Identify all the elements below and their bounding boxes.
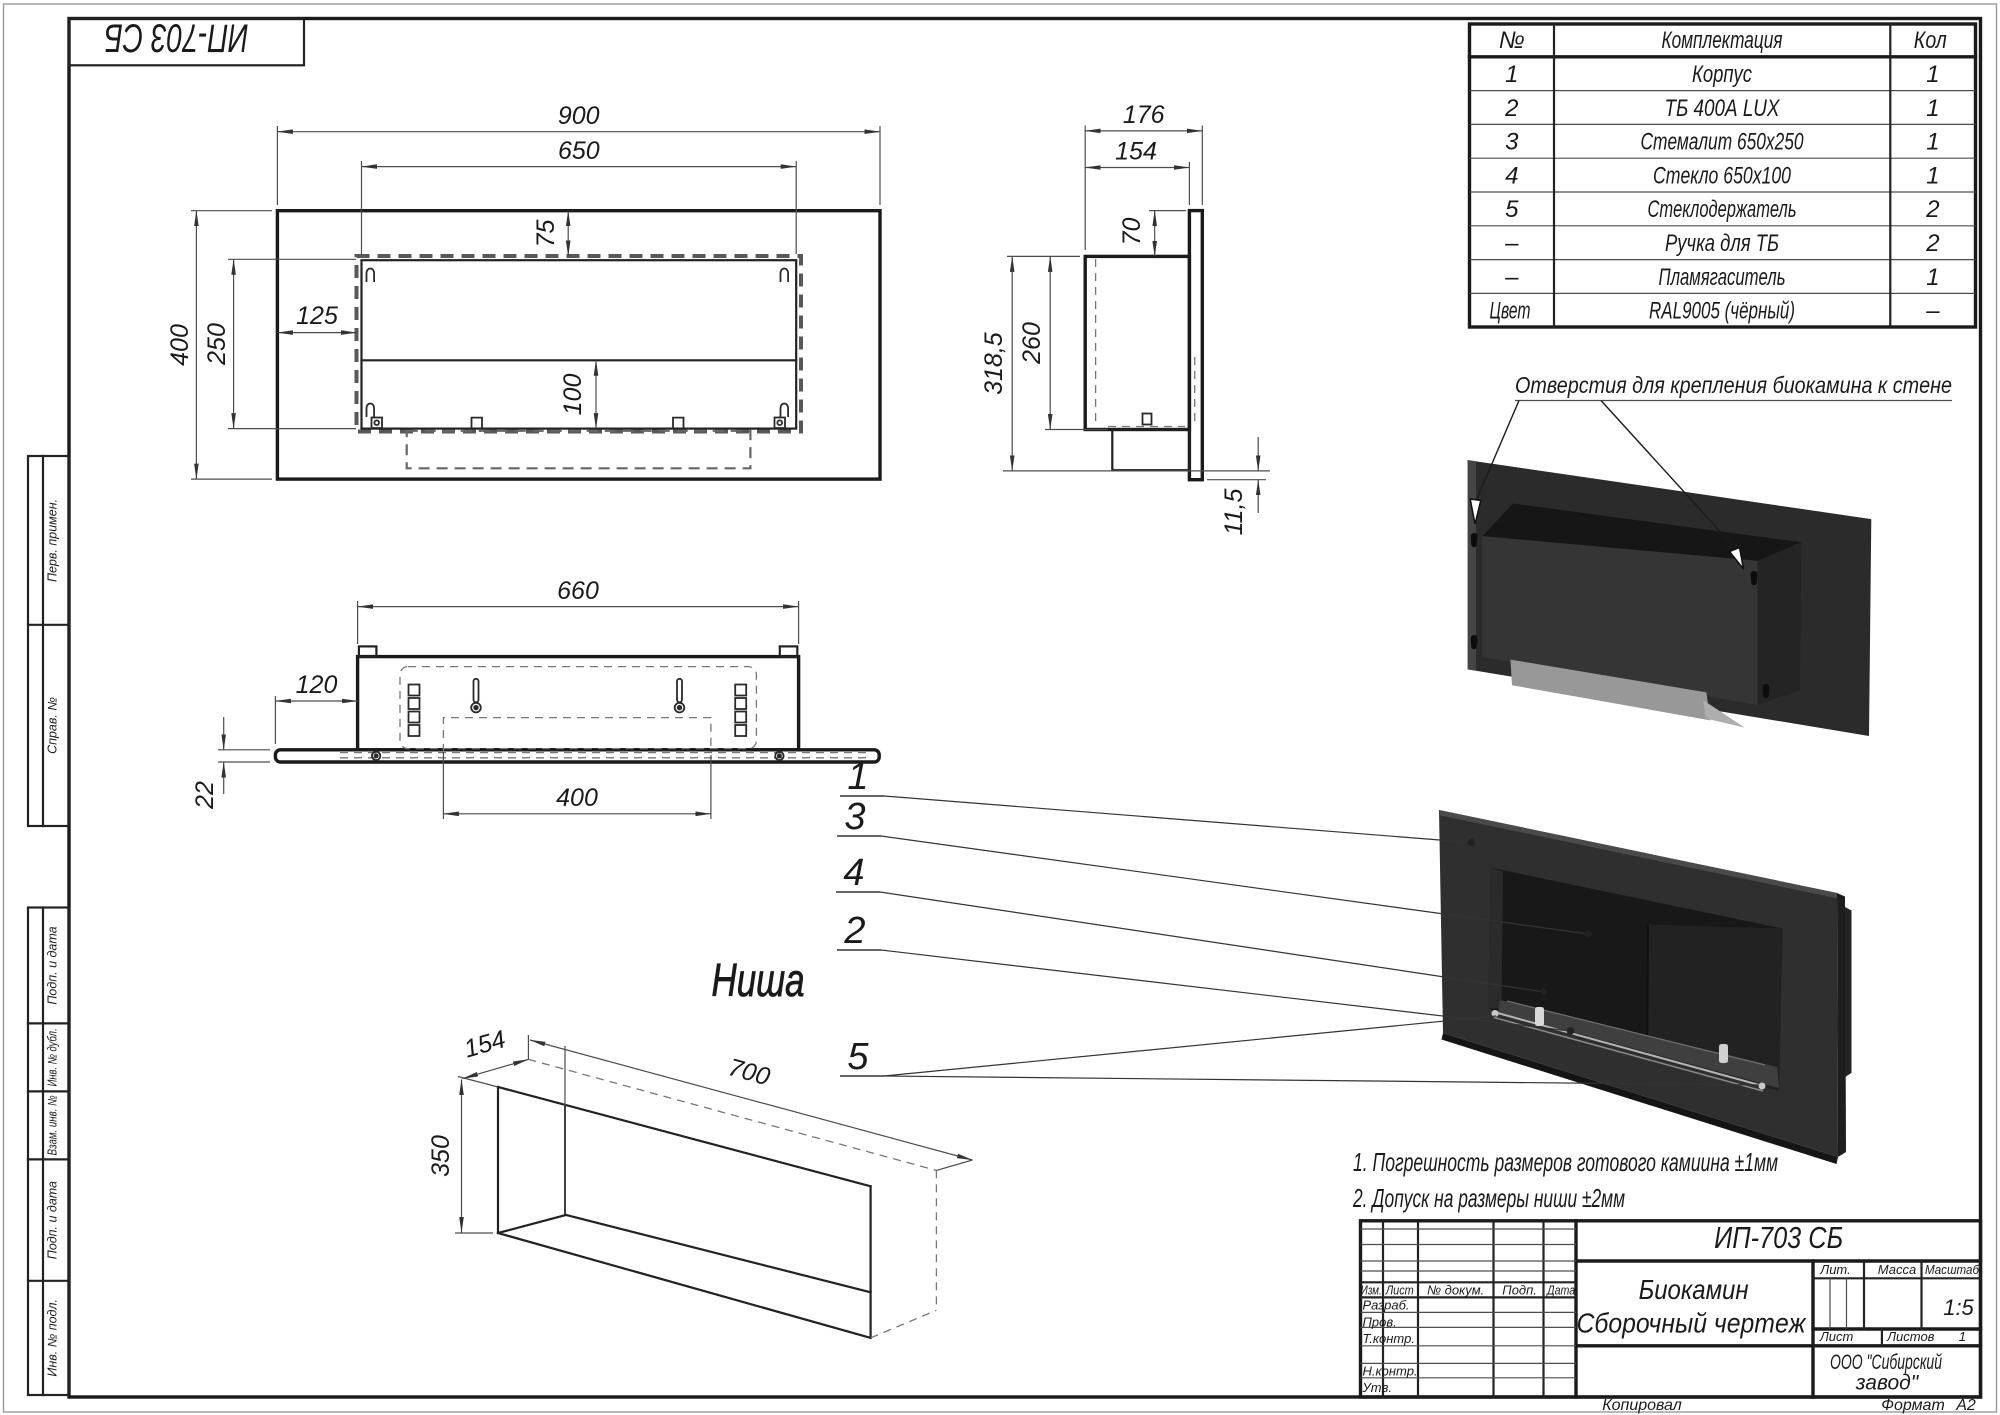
svg-text:Листов: Листов [1886, 1329, 1935, 1344]
svg-text:1: 1 [1926, 95, 1939, 122]
svg-text:318,5: 318,5 [980, 332, 1008, 395]
svg-text:–: – [1504, 230, 1519, 257]
svg-text:100: 100 [559, 374, 587, 416]
svg-text:Лист: Лист [1819, 1329, 1854, 1344]
svg-text:75: 75 [532, 220, 560, 248]
svg-text:1: 1 [1959, 1329, 1966, 1344]
svg-text:22: 22 [191, 781, 219, 810]
svg-text:Пров.: Пров. [1363, 1315, 1397, 1330]
svg-text:Ниша: Ниша [712, 954, 805, 1006]
svg-text:ТБ 400А LUX: ТБ 400А LUX [1665, 95, 1781, 122]
svg-text:№: № [1499, 27, 1525, 54]
svg-text:660: 660 [557, 577, 599, 605]
svg-text:1: 1 [1926, 264, 1939, 291]
svg-text:Инв. № дубл.: Инв. № дубл. [46, 1028, 60, 1086]
svg-text:350: 350 [427, 1135, 455, 1177]
svg-text:Кол: Кол [1914, 27, 1947, 54]
svg-text:120: 120 [296, 671, 338, 699]
svg-text:Дата: Дата [1545, 1283, 1575, 1298]
svg-text:Пламягаситель: Пламягаситель [1659, 264, 1786, 291]
svg-text:Взам. инв. №: Взам. инв. № [46, 1095, 60, 1155]
svg-text:Изм.: Изм. [1361, 1283, 1382, 1298]
svg-text:Лист: Лист [1385, 1283, 1414, 1298]
svg-text:1:5: 1:5 [1943, 1295, 1974, 1320]
svg-text:125: 125 [296, 302, 338, 330]
svg-text:1: 1 [1926, 162, 1939, 189]
svg-text:11,5: 11,5 [1220, 489, 1248, 536]
svg-text:900: 900 [558, 102, 600, 130]
svg-text:176: 176 [1123, 101, 1165, 129]
svg-text:2: 2 [1925, 196, 1939, 223]
svg-text:Копировал: Копировал [1602, 1397, 1682, 1414]
svg-text:4: 4 [843, 852, 864, 894]
svg-text:1: 1 [847, 756, 868, 798]
svg-text:3: 3 [844, 796, 865, 838]
svg-text:1: 1 [1926, 129, 1939, 156]
svg-text:5: 5 [1505, 196, 1519, 223]
svg-text:Справ. №: Справ. № [46, 697, 60, 754]
svg-text:154: 154 [1115, 138, 1157, 166]
svg-text:Корпус: Корпус [1692, 61, 1752, 88]
svg-text:Масштаб: Масштаб [1925, 1262, 1980, 1277]
svg-text:2: 2 [1925, 230, 1939, 257]
svg-text:70: 70 [1118, 218, 1146, 246]
svg-text:Стекло 650х100: Стекло 650х100 [1653, 162, 1791, 189]
svg-text:Отверстия для крепления биокам: Отверстия для крепления биокамина к стен… [1515, 372, 1952, 398]
svg-text:1: 1 [1926, 61, 1939, 88]
svg-text:Комплектация: Комплектация [1662, 27, 1783, 54]
svg-text:250: 250 [203, 323, 231, 366]
svg-text:Перв. примен.: Перв. примен. [46, 499, 60, 582]
svg-text:2. Допуск на размеры ниши ±2мм: 2. Допуск на размеры ниши ±2мм [1352, 1183, 1625, 1213]
svg-text:Инв. № подл.: Инв. № подл. [46, 1299, 60, 1377]
svg-text:Ручка для ТБ: Ручка для ТБ [1665, 230, 1779, 257]
svg-text:Подп. и дата: Подп. и дата [46, 1181, 60, 1259]
svg-text:Утв.: Утв. [1362, 1380, 1393, 1395]
svg-text:5: 5 [847, 1036, 869, 1078]
svg-text:1: 1 [1505, 61, 1518, 88]
svg-text:А2: А2 [1955, 1397, 1976, 1414]
svg-text:400: 400 [166, 324, 194, 366]
svg-text:4: 4 [1505, 162, 1518, 189]
svg-text:400: 400 [556, 784, 598, 812]
svg-text:1. Погрешность размеров готово: 1. Погрешность размеров готового камиина… [1353, 1147, 1778, 1177]
svg-text:–: – [1504, 264, 1519, 291]
svg-text:3: 3 [1505, 129, 1519, 156]
svg-text:Стемалит 650х250: Стемалит 650х250 [1641, 129, 1804, 156]
svg-text:Лит.: Лит. [1819, 1262, 1850, 1277]
svg-text:RAL9005 (чёрный): RAL9005 (чёрный) [1649, 298, 1795, 325]
svg-text:Формат: Формат [1881, 1397, 1945, 1414]
svg-text:650: 650 [558, 137, 600, 165]
svg-text:Разраб.: Разраб. [1363, 1298, 1410, 1313]
svg-text:ИП-703 СБ: ИП-703 СБ [1714, 1220, 1843, 1255]
svg-text:Подп.: Подп. [1502, 1283, 1537, 1298]
svg-text:Стеклодержатель: Стеклодержатель [1648, 196, 1797, 223]
svg-text:Биокамин: Биокамин [1639, 1274, 1749, 1305]
svg-text:2: 2 [1504, 95, 1518, 122]
svg-text:Цвет: Цвет [1490, 298, 1531, 325]
svg-text:ИП-703 СБ: ИП-703 СБ [105, 16, 249, 60]
svg-text:Сборочный чертеж: Сборочный чертеж [1577, 1308, 1808, 1339]
svg-text:260: 260 [1018, 322, 1046, 365]
svg-text:Н.контр.: Н.контр. [1363, 1364, 1418, 1379]
svg-text:Подп. и дата: Подп. и дата [46, 926, 60, 1004]
svg-text:Т.контр.: Т.контр. [1363, 1331, 1415, 1346]
svg-text:–: – [1925, 298, 1940, 325]
svg-text:завод": завод" [1855, 1372, 1920, 1395]
svg-text:Масса: Масса [1878, 1262, 1916, 1277]
svg-text:№ докум.: № докум. [1427, 1283, 1484, 1298]
svg-text:2: 2 [843, 910, 865, 952]
